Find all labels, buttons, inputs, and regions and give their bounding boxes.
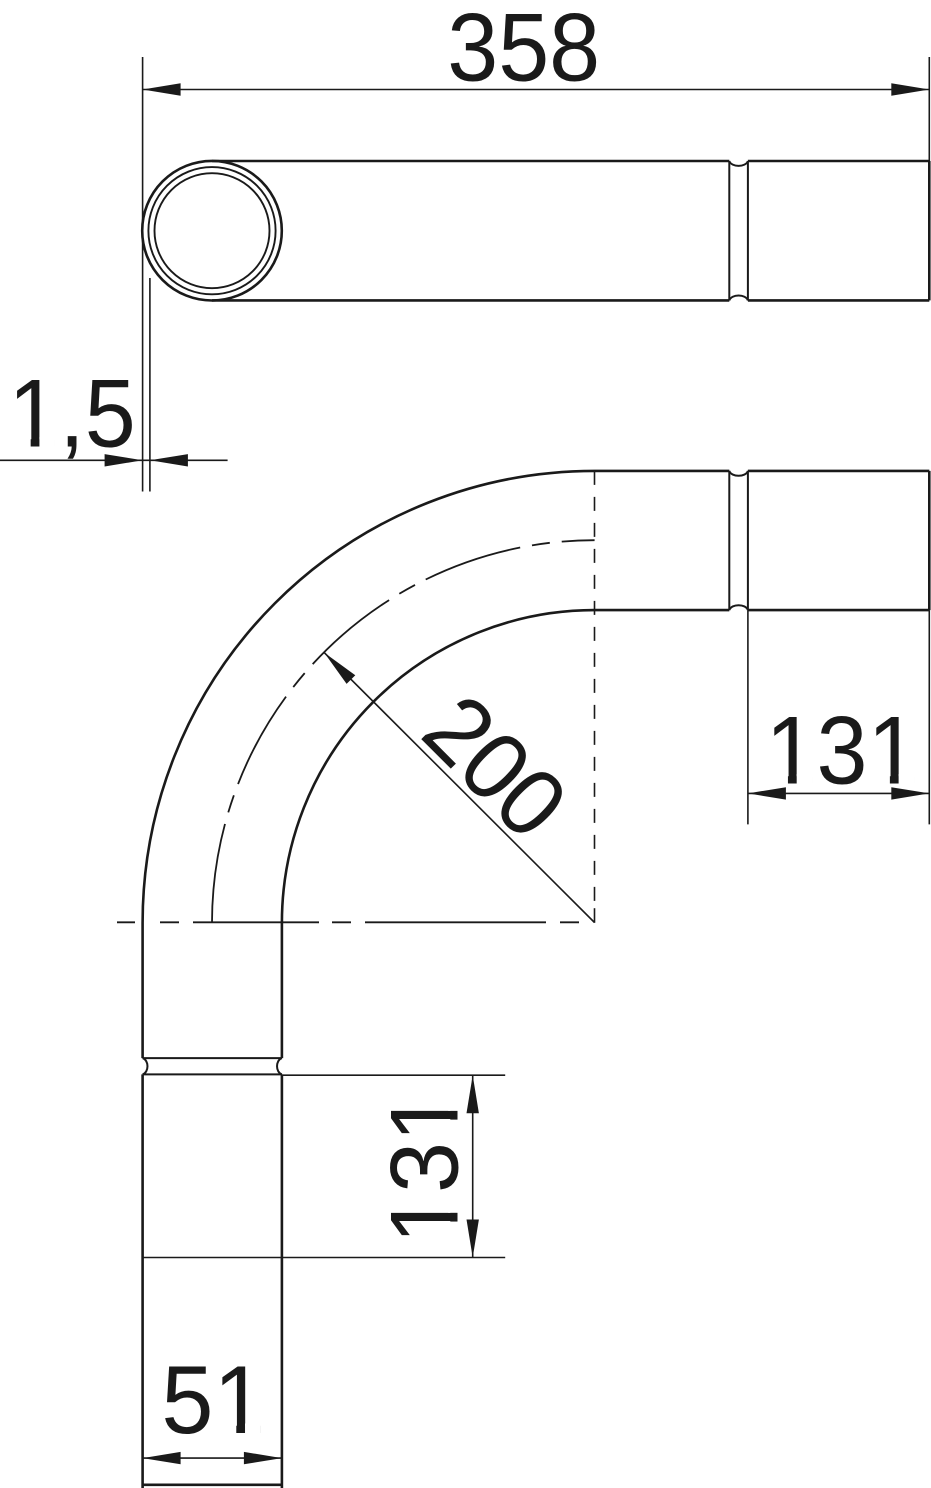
svg-text:131: 131	[766, 696, 919, 804]
svg-text:51: 51	[161, 1347, 265, 1455]
svg-text:1,5: 1,5	[8, 359, 135, 467]
svg-text:131: 131	[370, 1091, 478, 1244]
svg-text:358: 358	[447, 0, 600, 101]
